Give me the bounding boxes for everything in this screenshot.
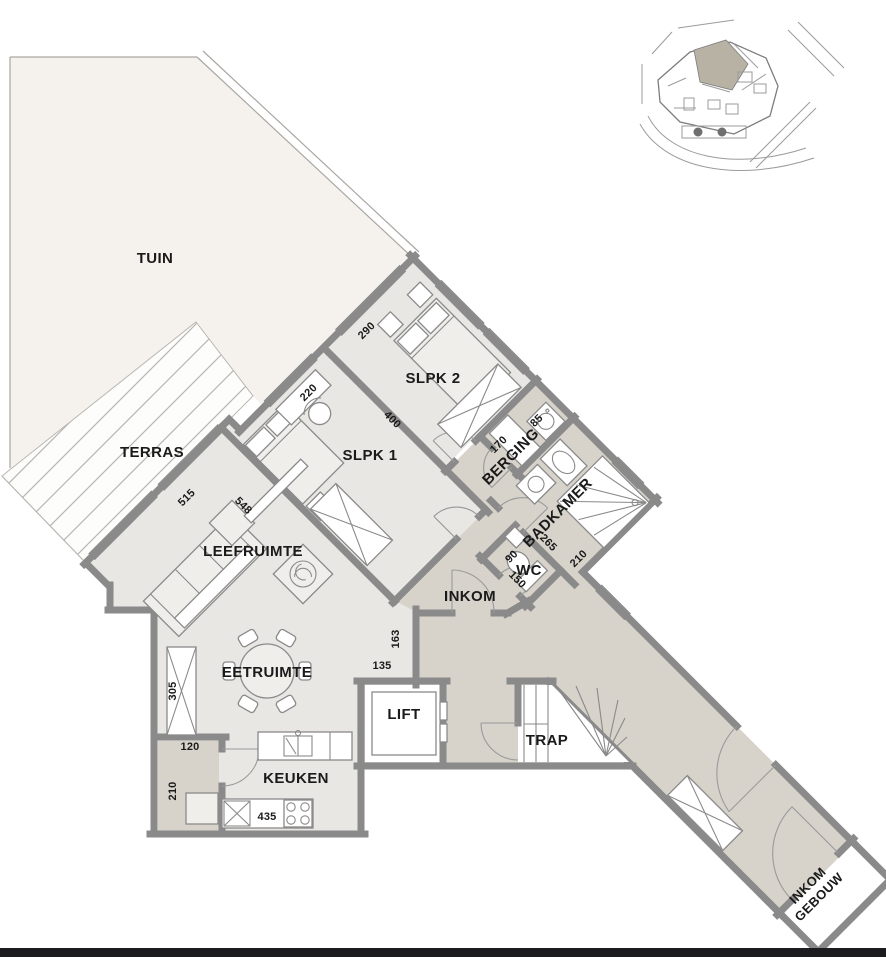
dim-163: 163 [390, 630, 402, 649]
dim-135: 135 [373, 660, 392, 672]
label-slpk2: SLPK 2 [406, 370, 461, 387]
label-tuin: TUIN [137, 250, 174, 267]
dim-210-berging: 210 [167, 782, 179, 801]
label-lift: LIFT [387, 706, 420, 723]
lift-shaft [365, 685, 443, 762]
dim-305: 305 [167, 682, 179, 701]
locator-tree-icon [694, 128, 703, 137]
label-trap: TRAP [526, 732, 568, 749]
locator-tree-icon [718, 128, 727, 137]
label-terras: TERRAS [120, 444, 184, 461]
floorplan-page: TUIN TERRAS LEEFRUIMTE EETRUIMTE KEUKEN … [0, 0, 886, 957]
boiler-icon [186, 793, 218, 824]
label-slpk1: SLPK 1 [343, 447, 398, 464]
dim-435: 435 [258, 811, 277, 823]
label-keuken: KEUKEN [263, 770, 329, 787]
stove-icon [284, 800, 312, 827]
label-leefruimte: LEEFRUIMTE [203, 543, 303, 560]
dim-120: 120 [181, 741, 200, 753]
label-eetruimte: EETRUIMTE [222, 664, 312, 681]
footer-bar [0, 948, 886, 957]
label-inkom: INKOM [444, 588, 496, 605]
floorplan-drawing: TUIN TERRAS LEEFRUIMTE EETRUIMTE KEUKEN … [0, 0, 886, 957]
site-locator-map [640, 20, 844, 171]
kitchen-island-icon [258, 731, 352, 761]
